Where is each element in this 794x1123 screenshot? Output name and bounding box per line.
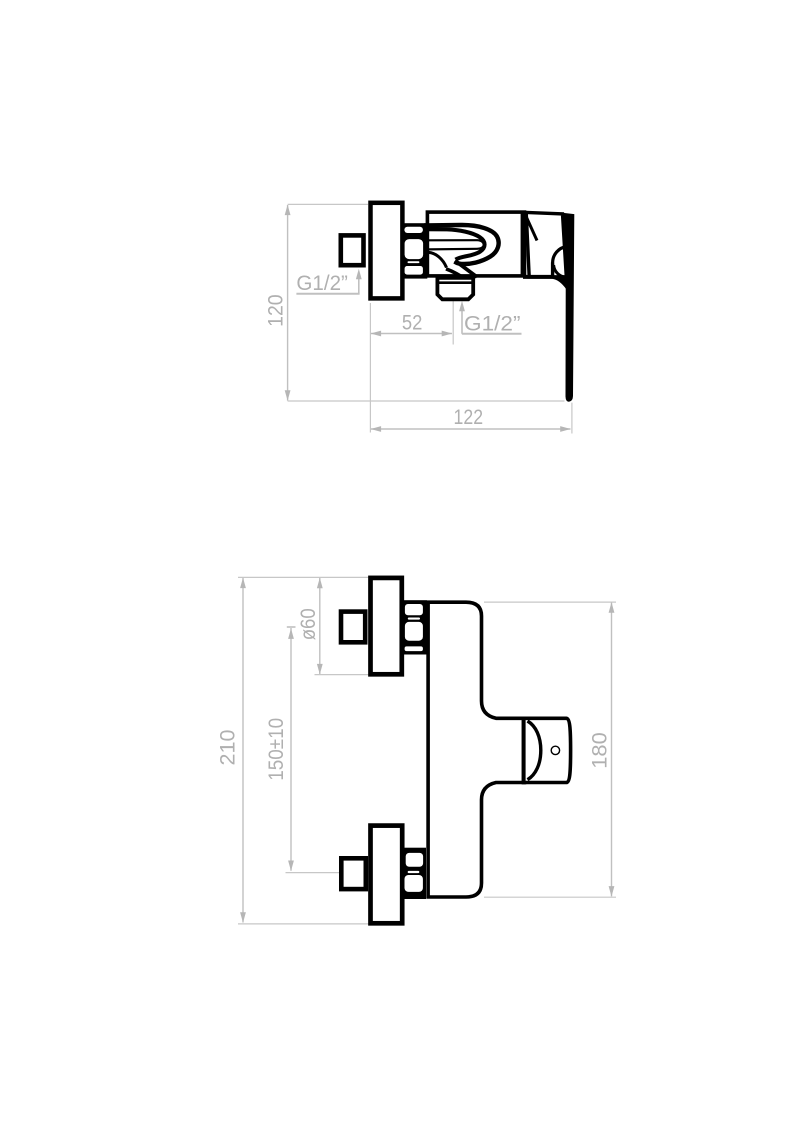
- svg-text:210: 210: [216, 730, 239, 766]
- svg-text:G1/2”: G1/2”: [296, 272, 348, 295]
- svg-text:150±10: 150±10: [265, 718, 288, 781]
- svg-text:120: 120: [265, 294, 288, 327]
- svg-text:52: 52: [402, 312, 423, 335]
- svg-text:122: 122: [454, 406, 484, 429]
- svg-text:G1/2”: G1/2”: [464, 312, 521, 335]
- svg-text:180: 180: [589, 732, 612, 769]
- svg-text:ø60: ø60: [297, 608, 320, 640]
